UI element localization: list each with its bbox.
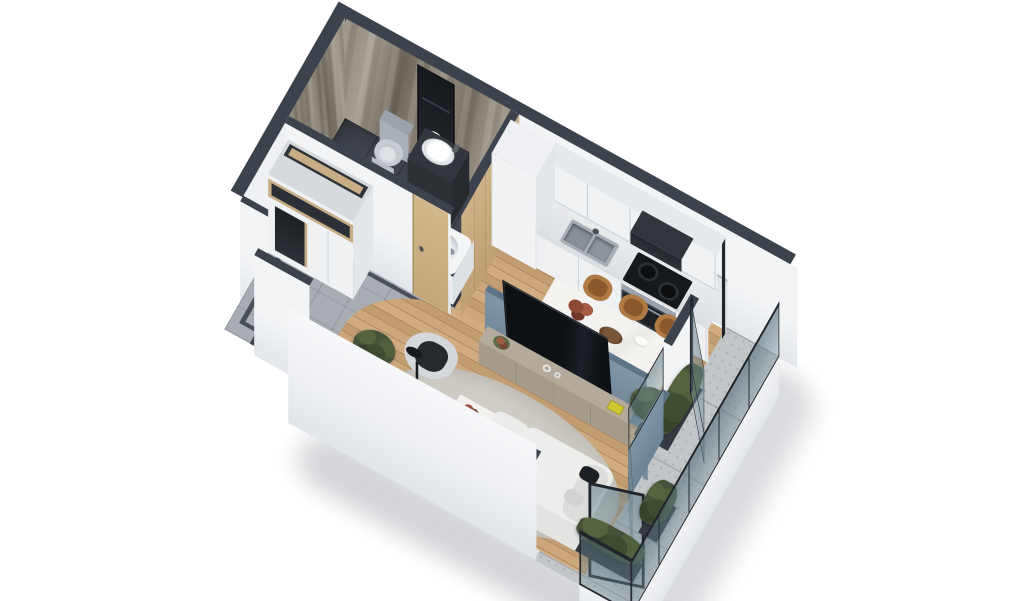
- kitchen-door-post: [722, 239, 725, 340]
- glassware-icon: [553, 371, 562, 379]
- sink-basin-right: [586, 236, 614, 263]
- glassware-icon: [541, 363, 552, 374]
- niche-shelf: [422, 97, 449, 114]
- burner-icon: [655, 278, 683, 304]
- burner-icon: [634, 259, 662, 285]
- plate: [633, 334, 649, 348]
- floor-plan-render: Welcome: [0, 0, 1021, 601]
- bathroom-door: [413, 193, 449, 313]
- closet-panel-seam: [328, 231, 329, 283]
- door-handle-icon: [419, 245, 423, 252]
